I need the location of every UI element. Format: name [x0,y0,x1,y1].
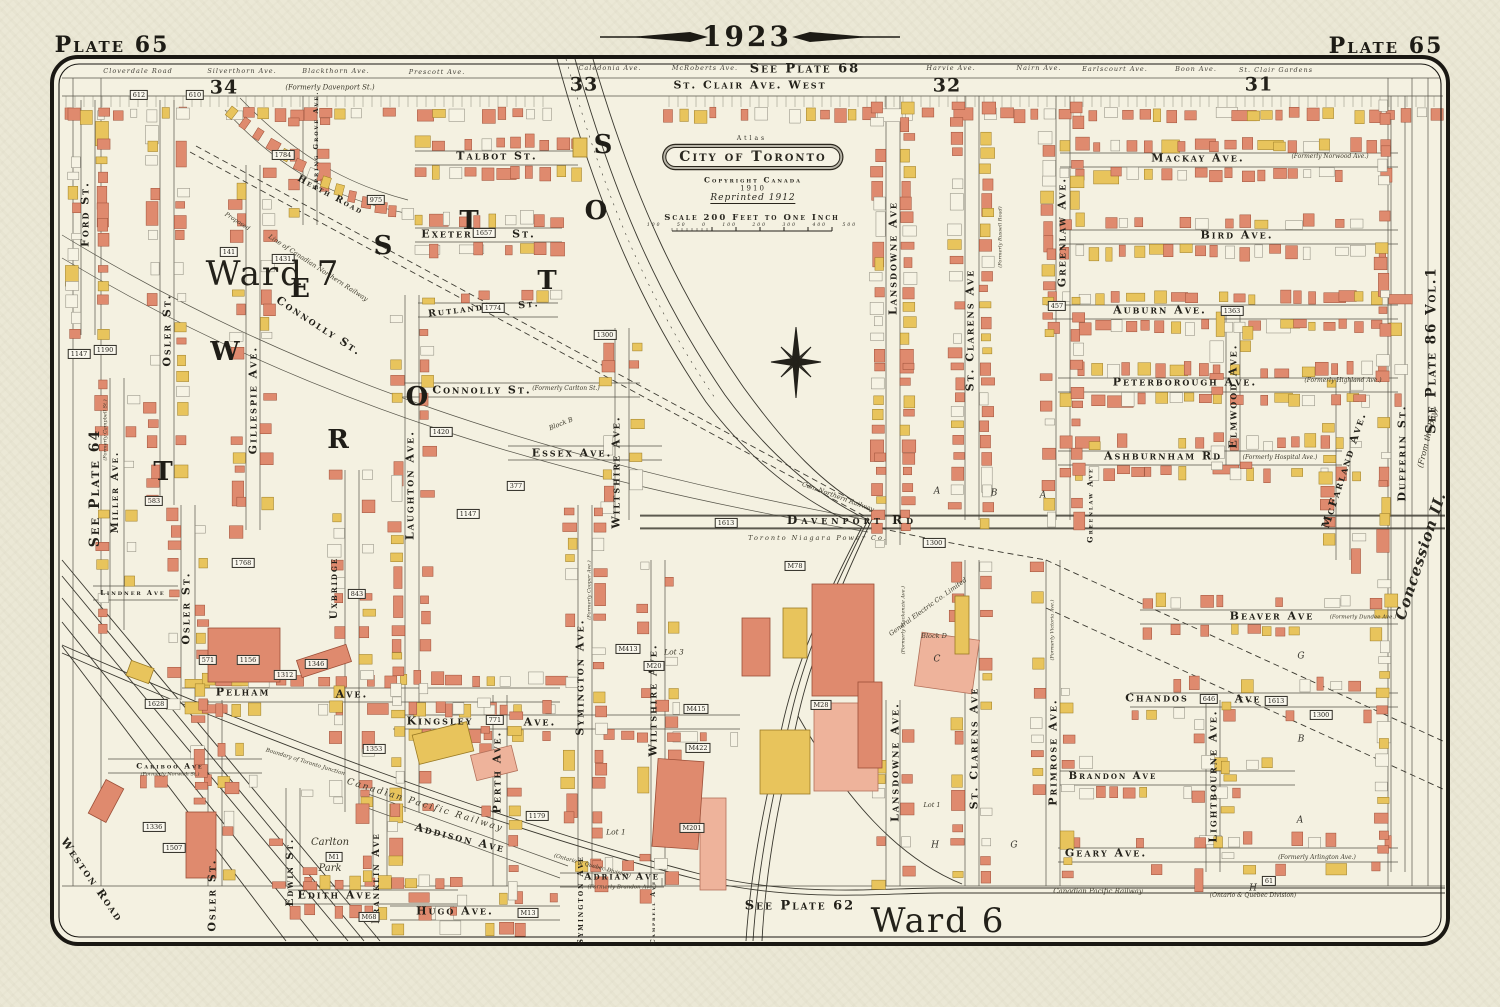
cartouche-atlas: Atlas [737,136,767,142]
street-miller-ave: Miller Ave. [111,451,121,534]
street-st-clarens-ave: St. Clarens Ave [969,687,980,810]
block-letter-b: B [991,490,998,499]
note-formerly-russell-road: (Formerly Russell Road) [999,206,1004,267]
note-formerly-highland-ave: (Formerly Highland Ave.) [1304,378,1381,384]
street-davenport-rd: Davenport Rd [787,514,917,526]
cartouche-title: City of Toronto [665,147,840,167]
street-st: St. [518,299,540,311]
street-laughton-ave: Laughton Ave. [405,430,416,540]
note-carlton: Carlton [311,838,349,848]
ward-6-label: Ward 6 [871,904,1006,938]
street-pelham: Pelham [216,687,271,698]
marker-61: 61 [1262,876,1276,886]
street-lansdowne-ave: Lansdowne Ave. [890,702,901,822]
district-letter-t: T [537,268,556,294]
see-plate-62-ref: See Plate 62 [745,900,855,913]
street-spring-grove-ave: Spring Grove Ave. [313,91,320,190]
see-plate-64-ref: See Plate 64 [88,429,102,547]
street-wiltshire-ave: Wiltshire Ave. [611,415,622,528]
marker-1613: 1613 [715,518,738,528]
block-letter-a: A [1297,817,1304,826]
marker-m422: M422 [685,743,710,753]
marker-377: 377 [507,481,525,491]
marker-1774: 1774 [482,303,505,313]
marker-m413: M413 [615,644,640,654]
note-formerly-norwood-ave: (Formerly Norwood Ave.) [1291,154,1368,160]
note-formerly-arlington-ave: (Formerly Arlington Ave.) [1278,855,1356,861]
street-franklin-ave: Franklin Ave [372,832,382,923]
street-perth-ave: Perth Ave. [492,731,503,814]
street-st: St. [512,229,536,240]
marker-843: 843 [348,589,366,599]
street-ford-st: Ford St. [80,181,91,247]
street-beaver-ave: Beaver Ave [1230,611,1315,622]
street-connolly-st: Connolly St. [432,385,531,396]
label-cloverdale-road: Cloverdale Road [103,68,172,75]
marker-1353: 1353 [363,744,386,754]
street-osler-st: Osler St. [207,858,218,931]
cpr-label: Canadian Pacific Railway [1053,889,1143,896]
street-greenlaw-ave: Greenlaw Ave. [1057,177,1068,287]
label-nairn-ave: Nairn Ave. [1016,65,1061,72]
block-letter-g: G [1297,653,1304,662]
marker-610: 610 [186,90,204,100]
block-letter-a: A [1040,492,1047,501]
street-elmwood-ave: Elmwood Ave. [1228,343,1239,448]
marker-1190: 1190 [94,345,117,355]
marker-1156: 1156 [237,655,260,665]
note-toronto-niagara-power-co: Toronto Niagara Power Co. [748,535,888,542]
marker-1507: 1507 [163,843,186,853]
street-dufferin-st: Dufferin St. [1397,404,1408,501]
street-ave: Ave. [336,689,369,700]
marker-1657: 1657 [473,228,496,238]
note-formerly-brandon-ave: (Formerly Brandon Ave.) [588,885,657,891]
note-formerly-cooper-ave: (Formerly Cooper Ave.) [588,560,593,619]
title-year: 1923 [702,23,792,51]
block-letter-h: H [931,842,939,851]
marker-457: 457 [1048,301,1066,311]
street-kingsley: Kingsley [407,716,474,727]
scale-text: Scale 200 Feet to One Inch [664,214,840,223]
street-brandon-ave: Brandon Ave [1069,772,1158,782]
marker-1346: 1346 [305,659,328,669]
marker-m78: M78 [785,561,806,571]
section-number-33: 33 [570,76,598,95]
note-lot-1: Lot 1 [606,828,626,836]
street-mackay-ave: Mackay Ave. [1151,153,1244,164]
street-lindner-ave: Lindner Ave [100,590,165,597]
section-number-32: 32 [933,77,961,96]
label-earlscourt-ave: Earlscourt Ave. [1082,66,1148,73]
street-auburn-ave: Auburn Ave. [1113,305,1207,316]
marker-975: 975 [367,195,385,205]
cpr-division-label: (Ontario & Quebec Division) [1210,893,1297,899]
street-bird-ave: Bird Ave. [1200,230,1273,241]
street-hugo-ave: Hugo Ave. [416,906,494,917]
marker-571: 571 [199,655,217,665]
block-letter-c: C [934,656,941,665]
street-edwin-st: Edwin St. [286,838,296,907]
marker-m20: M20 [644,661,665,671]
marker-771: 771 [486,715,504,725]
note-park: Park [318,864,341,874]
street-ashburnham-rd: Ashburnham Rd [1104,451,1222,462]
section-number-34: 34 [210,79,238,98]
street-ave: Ave [1235,694,1262,705]
street-ave: Ave. [524,717,557,728]
note-formerly-dundee-ave: (Formerly Dundee Ave.) [1330,615,1397,621]
marker-1420: 1420 [430,427,453,437]
marker-m28: M28 [811,700,832,710]
street-lansdowne-ave: Lansdowne Ave [888,201,899,315]
marker-m68: M68 [359,912,380,922]
street-osler-st: Osler St. [181,571,192,644]
block-letter-g: G [1010,842,1017,851]
marker-612: 612 [130,90,148,100]
marker-1628: 1628 [145,699,168,709]
street-st-clarens-ave: St. Clarens Ave [965,269,976,392]
street-symington-ave: Symington Ave [576,855,584,945]
scale-ticks: 100 50 0 100 200 300 400 500 [647,224,857,229]
marker-1300: 1300 [594,330,617,340]
street-edith-ave: Edith Ave. [297,890,378,901]
marker-1300: 1300 [923,538,946,548]
marker-1312: 1312 [274,670,297,680]
see-plate-68-ref: See Plate 68 [750,63,860,76]
note-block-d: Block D [921,633,947,640]
street-chandos: Chandos [1125,693,1189,704]
street-symington-ave: Symington Ave. [575,618,586,735]
street-uxbridge: Uxbridge [330,557,340,620]
street-gillespie-ave: Gillespie Ave. [248,346,259,455]
label-st-clair-gardens: St. Clair Gardens [1239,67,1313,74]
marker-m1: M1 [326,852,343,862]
district-letter-t: T [153,459,172,485]
district-letter-s: S [594,132,613,158]
marker-1363: 1363 [1221,306,1244,316]
label-caledonia-ave: Caledonia Ave. [578,65,641,72]
label-harvie-ave: Harvie Ave. [926,65,975,72]
block-letter-b: B [1298,736,1305,745]
st-clair-ave-west-label: St. Clair Ave. West [673,80,826,91]
marker-1768: 1768 [232,558,255,568]
street-osler-st: Osler St. [162,293,173,366]
marker-646: 646 [1200,694,1218,704]
district-letter-w: W [210,339,239,365]
note-formerly-norwich-st: (Formerly Norwich St.) [141,773,200,778]
marker-m13: M13 [518,908,539,918]
marker-1336: 1336 [143,822,166,832]
marker-1179: 1179 [526,811,549,821]
label-prescott-ave: Prescott Ave. [409,69,466,76]
marker-m415: M415 [683,704,708,714]
note-lot-3: Lot 3 [664,648,684,656]
street-lightbourne-ave: Lightbourne Ave. [1208,709,1219,842]
label-silverthorn-ave: Silverthorn Ave. [207,68,276,75]
district-letter-o: O [406,384,429,410]
block-letter-a: A [934,488,941,497]
note-lot-1: Lot 1 [923,802,940,809]
street-greenlaw-ave: Greenlaw Ave [1086,467,1094,543]
cartouche-copyright: Copyright Canada [704,176,802,184]
marker-1147: 1147 [68,349,91,359]
street-essex-ave: Essex Ave. [532,448,613,459]
marker-1613: 1613 [1265,696,1288,706]
note-formerly-campbell-st: (Formerly Campbell St.) [104,399,109,460]
note-formerly-carlton-st: (Formerly Carlton St.) [532,386,600,392]
street-talbot-st: Talbot St. [456,151,537,162]
street-cariboo-ave: Cariboo Ave [136,762,204,770]
label-mcroberts-ave: McRoberts Ave. [672,65,738,72]
district-letter-s: S [374,233,393,259]
street-primrose-ave: Primrose Ave. [1048,698,1059,806]
cartouche-year: 1910 [740,186,766,193]
section-number-31: 31 [1245,76,1273,95]
note-formerly-victoria-ave: (Formerly Victoria Ave.) [1051,600,1056,661]
marker-583: 583 [145,496,163,506]
cartouche-reprint: Reprinted 1912 [710,194,795,204]
atlas-plate-page: Cloverdale RoadSilverthorn Ave.Blackthor… [0,0,1500,1007]
marker-1300: 1300 [1310,710,1333,720]
district-letter-o: O [585,198,608,224]
marker-m201: M201 [679,823,704,833]
note-formerly-hospital-ave: (Formerly Hospital Ave.) [1243,455,1318,461]
plate-number-left: Plate 65 [55,34,170,56]
district-letter-r: R [327,427,349,453]
label-boon-ave: Boon Ave. [1175,66,1217,73]
section-note-34: (Formerly Davenport St.) [285,85,374,92]
plate-number-right: Plate 65 [1329,35,1444,57]
ward-7-label: Ward 7 [206,257,341,291]
marker-1784: 1784 [272,150,295,160]
street-geary-ave: Geary Ave. [1065,848,1147,859]
marker-1147: 1147 [457,509,480,519]
label-blackthorn-ave: Blackthorn Ave. [302,68,369,75]
